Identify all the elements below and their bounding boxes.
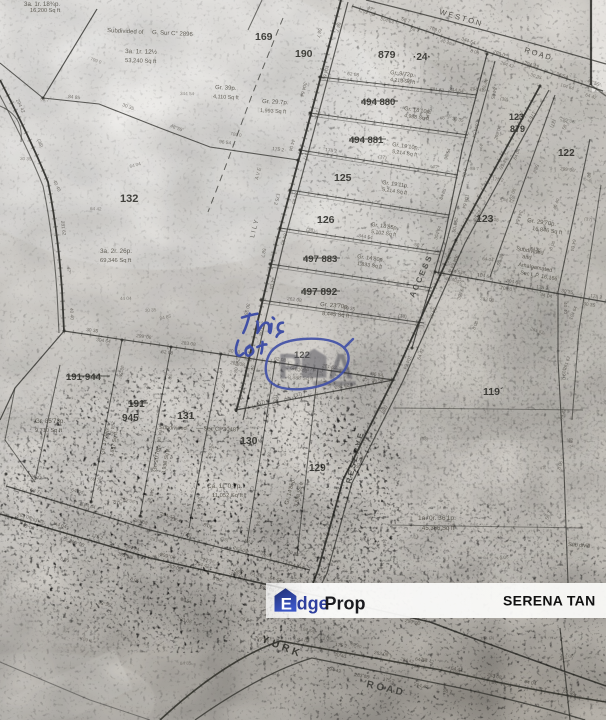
svg-text:Prop: Prop xyxy=(325,594,366,614)
svg-text:SERENA TAN: SERENA TAN xyxy=(503,593,595,609)
svg-text:P: P xyxy=(278,348,301,387)
svg-text:E: E xyxy=(281,594,292,613)
